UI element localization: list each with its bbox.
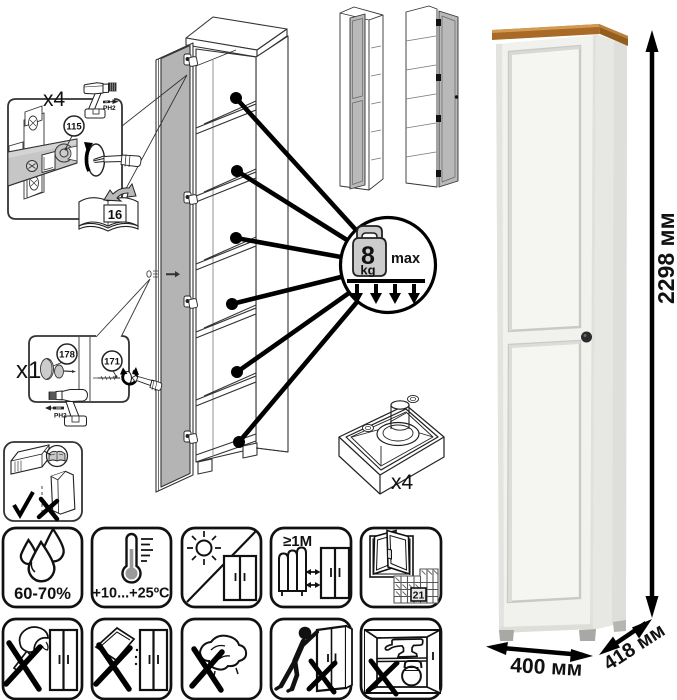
svg-text:21: 21 [413, 590, 425, 602]
svg-text:16: 16 [108, 207, 122, 222]
svg-text:x4: x4 [43, 88, 66, 111]
svg-text:x4: x4 [391, 471, 414, 494]
svg-text:178: 178 [59, 350, 75, 361]
svg-text:171: 171 [104, 357, 121, 368]
svg-text:x1: x1 [16, 357, 41, 384]
svg-text:max: max [391, 251, 420, 267]
svg-text:PH2: PH2 [54, 413, 67, 420]
svg-text:115: 115 [66, 122, 82, 133]
svg-text:400 мм: 400 мм [510, 654, 583, 681]
svg-text:kg: kg [360, 263, 375, 278]
svg-text:60-70%: 60-70% [14, 585, 71, 603]
svg-text:+10...+25ºC: +10...+25ºC [92, 586, 170, 602]
svg-text:PH2: PH2 [103, 105, 116, 112]
svg-text:2298 мм: 2298 мм [653, 212, 677, 304]
svg-text:≥1М: ≥1М [283, 533, 312, 550]
